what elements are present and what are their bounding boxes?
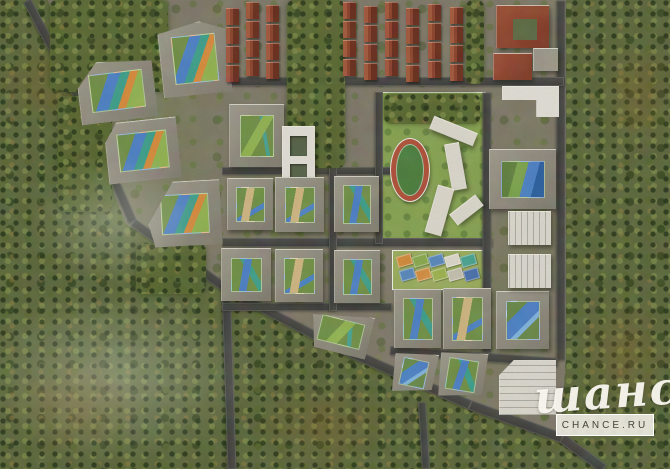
masterplan-scene: шанс CHANCE.RU: [0, 0, 670, 469]
watermark-script: шанс: [533, 365, 670, 420]
watermark-box: CHANCE.RU: [556, 414, 654, 436]
